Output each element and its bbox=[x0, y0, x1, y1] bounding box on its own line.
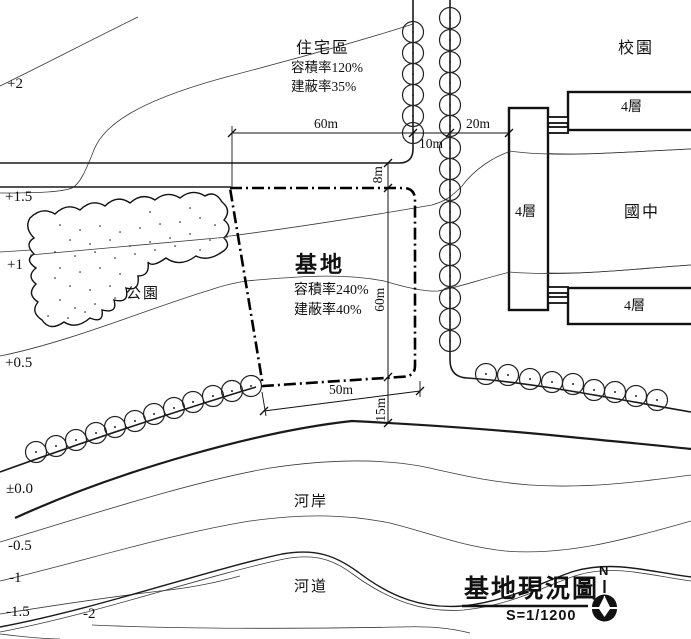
tree-icon bbox=[647, 390, 668, 411]
park-label: 公園 bbox=[126, 286, 160, 303]
site-coverage-label: 建蔽率40% bbox=[294, 303, 362, 319]
tree-icon bbox=[66, 430, 87, 451]
tree-row-southwest bbox=[26, 376, 262, 463]
tree-icon bbox=[125, 411, 146, 432]
dim-label-8m: 8m bbox=[370, 155, 386, 195]
site-plan-canvas bbox=[0, 0, 691, 639]
site-plan: +2 +1.5 +1 +0.5 ±0.0 -0.5 -1 -1.5 -2 住宅區… bbox=[0, 0, 691, 639]
tree-icon bbox=[542, 372, 563, 393]
dim-label-50m: 50m bbox=[329, 382, 353, 398]
tree-icon bbox=[105, 417, 126, 438]
dim-label-15m: 15m bbox=[373, 390, 389, 430]
tree-icon bbox=[164, 398, 185, 419]
park-outline bbox=[28, 192, 229, 326]
south-building-floors-label: 4層 bbox=[624, 299, 645, 315]
residential-coverage-label: 建蔽率35% bbox=[291, 79, 356, 95]
tree-icon bbox=[241, 376, 262, 397]
drawing-title: 基地現況圖 bbox=[464, 576, 599, 605]
dim-label-10m: 10m bbox=[419, 136, 443, 152]
tree-icon bbox=[86, 423, 107, 444]
dim-label-60m-side: 60m bbox=[372, 280, 388, 320]
tree-icon bbox=[183, 392, 204, 413]
tree-icon bbox=[476, 364, 497, 385]
riverbank-label: 河岸 bbox=[294, 494, 328, 511]
tree-icon bbox=[144, 404, 165, 425]
elevation-label-minus1-5: -1.5 bbox=[6, 604, 30, 621]
tree-icon bbox=[203, 386, 224, 407]
river-channel-label: 河道 bbox=[294, 579, 328, 596]
north-building-floors-label: 4層 bbox=[621, 100, 642, 116]
campus-label: 校園 bbox=[618, 40, 654, 58]
elevation-label-minus0-5: -0.5 bbox=[8, 538, 32, 555]
riverbank-edge bbox=[15, 421, 691, 518]
school-buildings bbox=[509, 92, 691, 324]
tree-icon bbox=[626, 386, 647, 407]
elevation-label-zero: ±0.0 bbox=[6, 481, 33, 498]
elevation-label-minus2: -2 bbox=[83, 606, 96, 623]
dim-label-20m: 20m bbox=[466, 116, 490, 132]
wing-building-floors-label: 4層 bbox=[515, 205, 536, 221]
park-area bbox=[28, 192, 229, 326]
drawing-scale: S=1/1200 bbox=[506, 608, 577, 625]
school-label: 國中 bbox=[624, 204, 660, 222]
elevation-label-plus2: +2 bbox=[7, 76, 23, 93]
tree-icon bbox=[584, 380, 605, 401]
elevation-label-plus1: +1 bbox=[7, 257, 23, 274]
dim-label-60m-top: 60m bbox=[314, 116, 338, 132]
site-label: 基地 bbox=[295, 252, 345, 277]
tree-icon bbox=[46, 436, 67, 457]
school-connectors bbox=[548, 117, 568, 303]
elevation-label-plus0-5: +0.5 bbox=[5, 355, 32, 372]
north-label: N bbox=[599, 564, 608, 579]
tree-icon bbox=[222, 381, 243, 402]
residential-far-label: 容積率120% bbox=[291, 60, 363, 76]
elevation-label-minus1: -1 bbox=[9, 570, 22, 587]
residential-zone-label: 住宅區 bbox=[296, 40, 350, 58]
elevation-label-plus1-5: +1.5 bbox=[5, 189, 32, 206]
site-far-label: 容積率240% bbox=[294, 283, 369, 299]
tree-icon bbox=[520, 369, 541, 390]
